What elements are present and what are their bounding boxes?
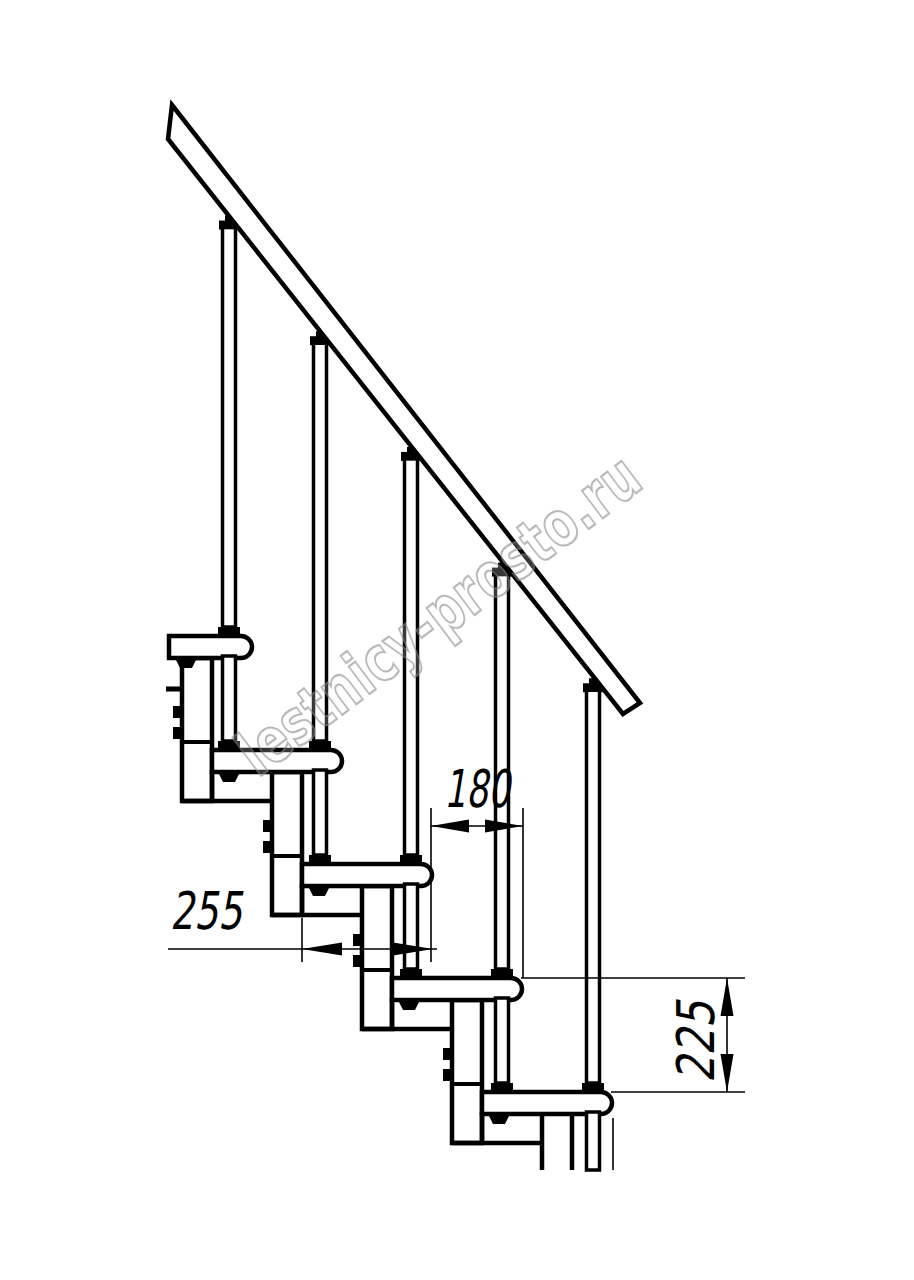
support-module (452, 1000, 482, 1143)
dimension-arrow-left (431, 820, 469, 833)
baluster-tread-collar (582, 1083, 604, 1094)
baluster-lower-shaft (587, 1112, 600, 1170)
baluster-lower-shaft (405, 884, 418, 969)
module-bolt (263, 841, 273, 853)
module-bolt (173, 727, 183, 739)
baluster-lower-shaft (314, 770, 327, 855)
baluster-landing-collar (309, 855, 331, 866)
page: { "drawing": { "type": "modular-staircas… (0, 0, 914, 1280)
tread-underside-bolt (309, 888, 329, 896)
dimension-label-step-offset: 180 (444, 759, 513, 819)
module-bolt (443, 1048, 453, 1060)
baluster-lower-shaft (496, 998, 509, 1083)
baluster-upper-shaft (223, 228, 236, 627)
module-bolt (443, 1069, 453, 1081)
module-bolt (353, 955, 363, 967)
dimension-label-riser-height: 225 (666, 999, 726, 1083)
tread-underside-bolt (489, 1116, 509, 1124)
staircase-drawing: 180255225lestnicy-prosto.ru (0, 0, 914, 1280)
module-bolt (353, 934, 363, 946)
baluster-upper-shaft (587, 690, 600, 1083)
module-bolt (173, 706, 183, 718)
support-module (272, 772, 302, 915)
tread-underside-bolt (219, 774, 239, 782)
support-module (362, 886, 392, 1029)
tread-underside-bolt (399, 1002, 419, 1010)
support-module (182, 658, 212, 801)
dimension-label-tread-depth: 255 (170, 881, 244, 941)
baluster-landing-collar (400, 969, 422, 980)
baluster-tread-collar (491, 969, 513, 980)
baluster-landing-collar (491, 1083, 513, 1094)
dimension-arrow-left (302, 943, 342, 956)
baluster-tread-collar (400, 855, 422, 866)
tread (169, 636, 252, 658)
baluster-tread-collar (218, 627, 240, 638)
drawing-canvas: 180255225lestnicy-prosto.ru (0, 0, 914, 1280)
module-bolt (263, 820, 273, 832)
